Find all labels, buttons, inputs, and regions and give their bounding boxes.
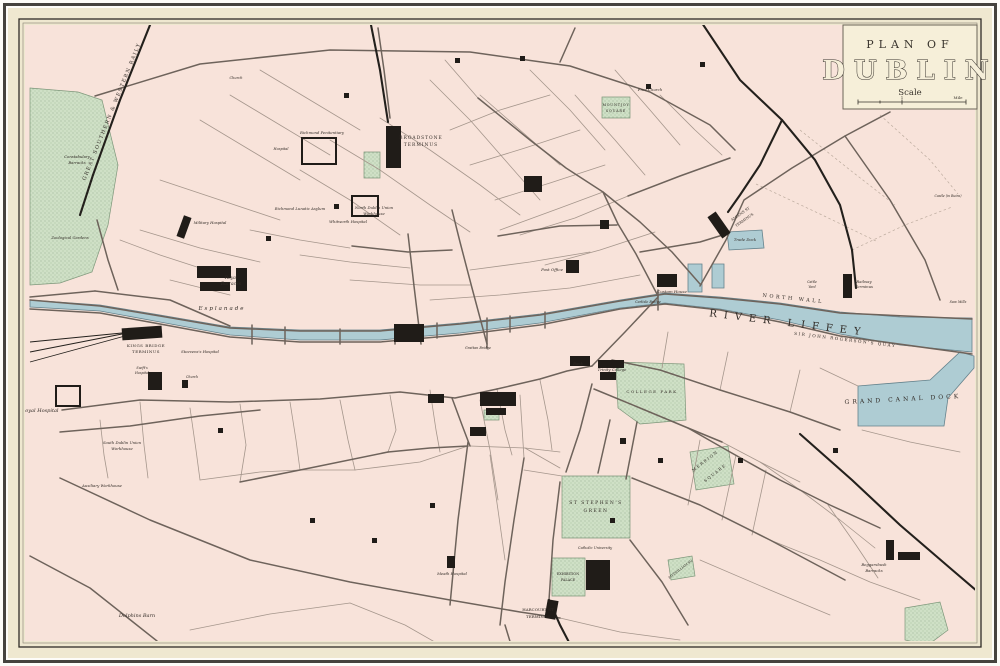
dublin-map-page: RIVER LIFFEYGRAND CANAL DOCKNORTH WALLSI…	[0, 0, 1000, 666]
map-label: Richmond Penitentiary	[299, 130, 345, 135]
map-label: South Dublin Union	[103, 440, 142, 445]
building	[455, 58, 460, 63]
building	[236, 268, 247, 291]
map-label: Swift's	[136, 366, 148, 370]
map-label: TERMINUS	[132, 349, 160, 354]
building	[886, 540, 894, 560]
building	[430, 503, 435, 508]
building	[148, 372, 162, 390]
building	[833, 448, 838, 453]
map-label: Beggarsbush	[860, 562, 887, 567]
building	[386, 126, 401, 168]
dock	[712, 264, 724, 288]
map-label: Terminus	[855, 284, 873, 289]
map-label: TERMINUS	[404, 143, 438, 148]
building	[182, 380, 188, 388]
park	[602, 97, 630, 118]
building	[700, 62, 705, 67]
map-label: Saw Mills	[950, 300, 967, 304]
map-label: Meath Hospital	[436, 571, 468, 576]
map-title-planof: PLAN OF	[866, 38, 953, 51]
building	[344, 93, 349, 98]
map-label: TERMINUS	[526, 614, 550, 619]
map-label: Hospital	[273, 147, 289, 151]
map-label: Whitworth Hospital	[329, 219, 368, 224]
building	[524, 176, 542, 192]
map-label: Constabulary	[64, 154, 91, 159]
map-label: HARCOURT ST	[522, 607, 554, 612]
building	[738, 458, 743, 463]
park	[552, 558, 585, 596]
building	[610, 518, 615, 523]
map-label: Barracks	[67, 160, 85, 165]
map-label: Workhouse	[363, 211, 385, 216]
map-label: PALACE	[561, 578, 576, 582]
map-label: Catholic University	[578, 546, 613, 550]
map-label: MOUNTJOY	[602, 103, 629, 107]
building	[428, 394, 444, 403]
map-label: Dolphins Barn	[118, 613, 155, 619]
building	[372, 538, 377, 543]
map-label: Royal Hospital	[20, 408, 58, 414]
map-label: Custom House	[657, 289, 687, 294]
map-label: Cattle	[807, 280, 817, 284]
map-label: Barracks	[864, 568, 882, 573]
building	[600, 372, 616, 380]
building	[310, 518, 315, 523]
building	[898, 552, 920, 560]
map-label: Castle (in Ruins)	[935, 194, 963, 198]
building	[334, 204, 339, 209]
map-label: Carlisle Bridge	[635, 300, 661, 304]
map-label: Esplanade	[198, 306, 246, 312]
building	[600, 220, 609, 229]
map-label: Richmond Lunatic Asylum	[274, 206, 326, 211]
map-label: Yard	[808, 285, 815, 289]
map-label: Post Office	[540, 267, 564, 272]
scale-mile-label: Mile	[953, 95, 963, 100]
map-label: Workhouse	[111, 446, 133, 451]
building	[520, 56, 525, 61]
title-cartouche: PLAN OF DUBLIN Scale 1 Mile	[822, 25, 997, 109]
map-label: North Dublin Union	[354, 205, 394, 210]
dublin-map: RIVER LIFFEYGRAND CANAL DOCKNORTH WALLSI…	[0, 0, 1000, 666]
map-label: Trinity College	[598, 367, 627, 372]
map-label: Bank	[572, 361, 583, 366]
building	[586, 560, 610, 590]
map-label: Hospital	[134, 371, 149, 375]
map-label: Auxiliary Workhouse	[81, 483, 123, 488]
map-label: Steevens's Hospital	[181, 349, 220, 354]
map-label: Zoological Gardens	[50, 235, 88, 240]
map-label: Church	[186, 375, 198, 379]
park	[562, 476, 630, 538]
map-label: Grattan Bridge	[465, 346, 491, 350]
map-label: KINGS BRIDGE	[127, 343, 165, 348]
building	[218, 428, 223, 433]
building	[486, 408, 506, 415]
building	[266, 236, 271, 241]
building	[447, 556, 455, 568]
building	[658, 458, 663, 463]
scale-one-label: 1	[901, 95, 904, 100]
map-label: GREEN	[584, 508, 609, 514]
map-label: Barracks	[220, 282, 242, 287]
building	[470, 427, 486, 436]
map-label: Royal	[224, 276, 238, 281]
map-title-dublin: DUBLIN	[822, 56, 997, 86]
map-label: ST STEPHEN'S	[569, 500, 622, 506]
map-label: BROADSTONE	[399, 136, 442, 141]
building	[566, 260, 579, 273]
building	[620, 438, 626, 444]
map-label: SQUARE	[606, 109, 626, 113]
map-label: Free Church	[637, 87, 663, 92]
map-label: Church	[229, 76, 242, 80]
map-label: COLLEGE PARK	[626, 389, 677, 394]
building	[657, 274, 677, 287]
map-label: Trade Dock	[734, 237, 757, 242]
map-label: Military Hospital	[193, 220, 227, 225]
map-content: RIVER LIFFEYGRAND CANAL DOCKNORTH WALLSI…	[20, 18, 978, 648]
building	[394, 324, 424, 342]
building	[480, 392, 516, 406]
map-label: EXHIBITION	[557, 572, 579, 576]
building	[843, 274, 852, 298]
